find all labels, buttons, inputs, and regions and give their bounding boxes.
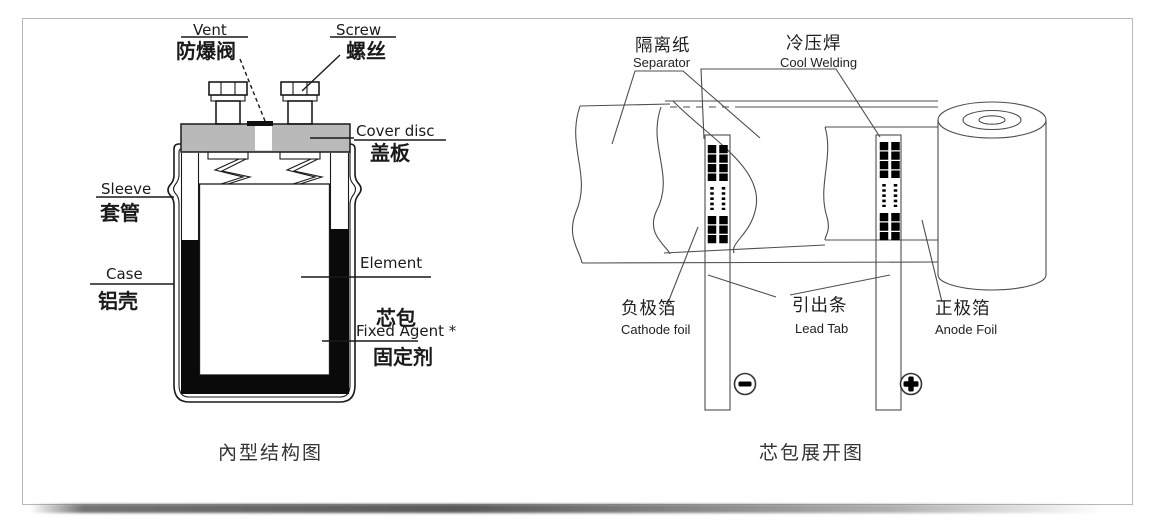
case-label: Case 铝壳 [90, 265, 174, 313]
left-caption: 內型结构图 [218, 442, 323, 464]
cool-welding-label: 冷压焊 Cool Welding [701, 33, 880, 139]
cool-welding-label-zh: 冷压焊 [786, 33, 842, 53]
element-label-en: Element [360, 254, 422, 272]
cathode-foil-label-en: Cathode foil [621, 322, 690, 337]
case-label-zh: 铝壳 [98, 289, 138, 313]
vent-label-zh: 防爆阀 [176, 39, 236, 63]
screw-label: Screw 螺丝 [302, 21, 396, 91]
screw-terminal-right [281, 82, 319, 124]
wound-roll [938, 102, 1046, 290]
lead-tab-label: 引出条 Lead Tab [708, 275, 890, 336]
element-core [200, 184, 330, 375]
internal-zigzag-tabs [208, 152, 322, 184]
separator-label-en: Separator [633, 55, 691, 70]
cover-disc-label-zh: 盖板 [370, 141, 411, 165]
anode-foil-label-zh: 正极箔 [935, 298, 991, 318]
cool-welding-label-en: Cool Welding [780, 55, 857, 70]
lead-tab-leader-left [708, 275, 776, 297]
core-pack-unrolled-diagram: 隔离纸 Separator 冷压焊 Cool Welding 负极箔 Catho… [558, 7, 1118, 487]
screw-terminal-left [209, 82, 247, 124]
weld-spots-right [884, 142, 896, 241]
vent-label: Vent 防爆阀 [176, 21, 265, 121]
page: Vent 防爆阀 Screw 螺丝 Cover disc 盖板 Sleeve 套… [0, 0, 1158, 532]
lead-tab-label-en: Lead Tab [795, 321, 848, 336]
lead-tab-leader-right [790, 275, 890, 295]
vent-leader [240, 59, 265, 121]
fixed-agent-label-zh: 固定剂 [373, 345, 433, 369]
right-caption: 芯包展开图 [759, 442, 864, 464]
cathode-foil-leader [667, 227, 698, 305]
sleeve-label: Sleeve 套管 [96, 180, 174, 225]
anode-foil-label: 正极箔 Anode Foil [922, 220, 997, 337]
weld-spots-left [712, 145, 724, 244]
cathode-foil-label: 负极箔 Cathode foil [621, 227, 698, 337]
vent-slit [247, 121, 273, 126]
negative-polarity-icon [735, 374, 756, 395]
cover-disc-label-en: Cover disc [356, 122, 434, 140]
cathode-foil-label-zh: 负极箔 [621, 298, 677, 318]
anode-foil-label-en: Anode Foil [935, 322, 997, 337]
lead-tab-label-zh: 引出条 [792, 295, 848, 315]
internal-structure-diagram: Vent 防爆阀 Screw 螺丝 Cover disc 盖板 Sleeve 套… [58, 7, 538, 467]
screw-label-zh: 螺丝 [346, 39, 386, 63]
separator-label: 隔离纸 Separator [612, 35, 760, 144]
card-drop-shadow [30, 504, 1106, 513]
screw-leader [302, 55, 340, 91]
fixed-agent-label-en: Fixed Agent * [356, 322, 457, 340]
sleeve-label-en: Sleeve [101, 180, 151, 198]
sleeve-label-zh: 套管 [100, 201, 140, 225]
anode-foil-leader [922, 220, 942, 302]
positive-polarity-icon [901, 374, 922, 395]
vent-gap [255, 126, 272, 151]
separator-label-zh: 隔离纸 [635, 35, 691, 55]
case-label-en: Case [106, 265, 143, 283]
cool-welding-leader [701, 69, 880, 139]
